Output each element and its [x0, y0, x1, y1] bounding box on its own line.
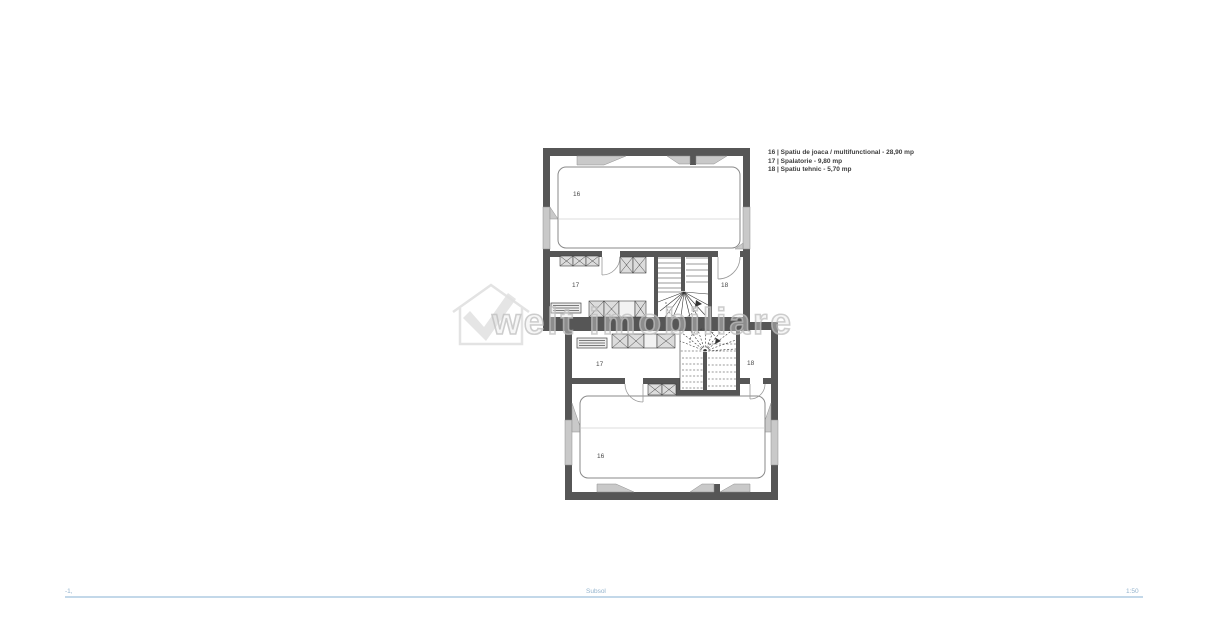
- lower-unit: 17 18 16: [565, 322, 778, 500]
- legend-item-laundry: 17 | Spalatorie - 9,80 mp: [768, 158, 914, 167]
- footer-floor-title: Subsol: [586, 588, 606, 595]
- lower-room-18-label: 18: [747, 360, 755, 367]
- lower-laundry-fixtures: [612, 334, 676, 395]
- lower-room-16-label: 16: [597, 453, 605, 460]
- lower-play-mat: [580, 396, 765, 478]
- watermark-text: welt imobiliare: [492, 301, 794, 343]
- footer-scale-label: 1:50: [1126, 588, 1139, 595]
- upper-room-17-label: 17: [572, 282, 580, 289]
- legend-item-playroom: 16 | Spatiu de joaca / multifunctional -…: [768, 149, 914, 158]
- lower-room-17-label: 17: [596, 361, 604, 368]
- upper-room-16-label: 16: [573, 191, 581, 198]
- room-legend: 16 | Spatiu de joaca / multifunctional -…: [768, 149, 914, 175]
- upper-room-18-label: 18: [721, 282, 729, 289]
- footer-divider-line: [65, 596, 1143, 598]
- legend-item-technical: 18 | Spatiu tehnic - 5,70 mp: [768, 166, 914, 175]
- upper-play-mat: [558, 167, 740, 248]
- footer-level-label: -1,: [65, 588, 73, 595]
- floorplan-sheet: { "legend": { "items": [ "16 | Spatiu de…: [0, 0, 1207, 626]
